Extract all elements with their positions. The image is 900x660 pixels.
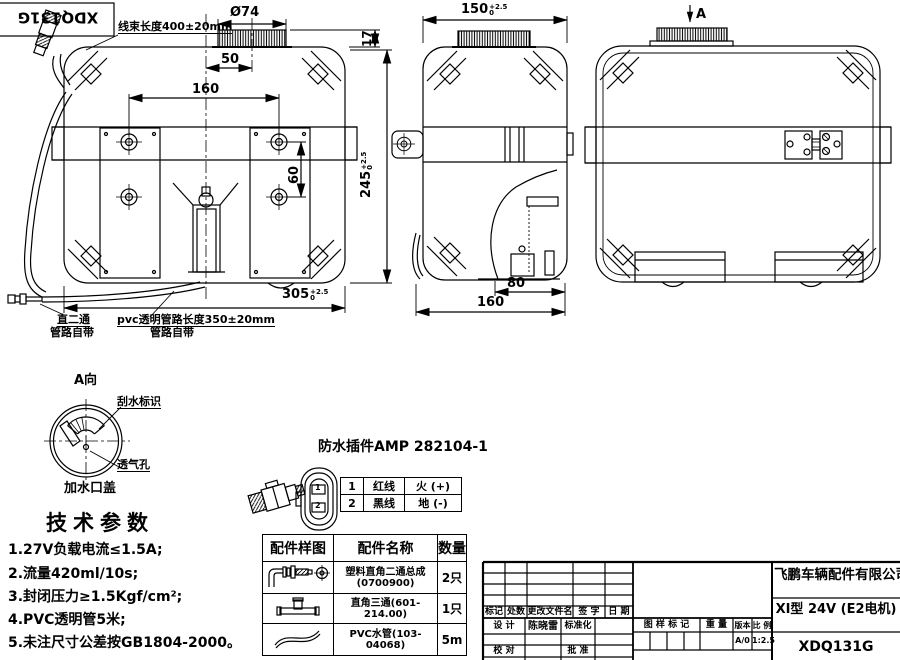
dim-tank-width: 305+2.50 xyxy=(282,288,328,302)
tb-weight-label: 重 量 xyxy=(700,621,733,631)
parts-header-sample: 配件样图 xyxy=(263,535,334,562)
pvc-tube-icon xyxy=(265,625,331,651)
dim-hole-span: 160 xyxy=(192,83,219,97)
dim-tank-height: 245+2.50 xyxy=(360,152,374,198)
tb-company-name: 飞鹏车辆配件有限公司 xyxy=(774,568,898,583)
table-row: 配件样图 配件名称 数量 xyxy=(263,535,467,562)
dim-cap-diameter: Ø74 xyxy=(230,6,259,20)
tb-count-label: 处数 xyxy=(505,608,527,618)
connector-pin2-mark: 2 xyxy=(315,502,321,511)
tb-date-label: 日 期 xyxy=(605,608,633,618)
connector-face-view xyxy=(296,468,337,530)
pin-wire: 红线 xyxy=(364,478,405,495)
tech-param-item: 2.流量420ml/10s; xyxy=(8,567,138,582)
strap-clamp xyxy=(785,131,842,159)
table-row: 塑料直角二通总成 (0700900) 2只 xyxy=(263,562,467,594)
tb-check-label: 校 对 xyxy=(483,647,525,657)
tech-params-title: 技术参数 xyxy=(46,512,154,535)
detail-a-title: A向 xyxy=(74,374,97,388)
wiper-symbol xyxy=(60,417,104,449)
table-row: 直角三通(601-214.00) 1只 xyxy=(263,594,467,624)
engineering-drawing-sheet: XDQ131G 线束长度400±20mm Ø74 50 160 60 17 24… xyxy=(0,0,900,660)
tech-param-item: 1.27V负载电流≤1.5A; xyxy=(8,543,163,558)
tech-param-item: 3.封闭压力≥1.5Kgf/cm²; xyxy=(8,590,182,605)
detail-a-view xyxy=(44,399,130,485)
dim-hole-vspan: 60 xyxy=(288,166,302,184)
part-qty: 5m xyxy=(438,624,467,656)
tb-version-label: 版本 xyxy=(733,622,752,631)
part-name: PVC水管(103-04068) xyxy=(334,629,437,651)
dim-pump-offset: 80 xyxy=(507,277,525,291)
tb-mark-label: 标记 xyxy=(483,608,505,618)
dim-cap-height: 17 xyxy=(361,30,374,47)
parts-header-qty: 数量 xyxy=(438,535,467,562)
pvc-pipe-note-line2: 管路自带 xyxy=(150,327,194,339)
connector-pin-table: 1 红线 火 (+) 2 黑线 地 (-) xyxy=(340,477,462,512)
tb-product-title: XI型 24V (E2电机) xyxy=(774,603,898,617)
pin-no: 1 xyxy=(341,478,364,495)
pvc-pipe-note-line1: pvc透明管路长度350±20mm xyxy=(117,314,275,327)
straight-fitting-note-line2: 管路自带 xyxy=(50,327,94,339)
tee-fitting-icon xyxy=(265,595,331,619)
filler-cap-label: 加水口盖 xyxy=(64,482,116,496)
tb-scale-value: 1:2.5 xyxy=(752,637,772,646)
tb-scale-label: 比 例 xyxy=(752,622,772,631)
tech-param-item: 4.PVC透明管5米; xyxy=(8,613,126,628)
tb-standardization-label: 标准化 xyxy=(561,622,595,632)
table-row: 1 红线 火 (+) xyxy=(341,478,462,495)
connector-pin1-mark: 1 xyxy=(315,484,321,493)
part-code: (0700900) xyxy=(334,578,437,589)
tb-version-value: A/0 xyxy=(733,637,752,646)
tb-designer-name: 陈晓雷 xyxy=(525,621,561,632)
parts-header-name: 配件名称 xyxy=(334,535,438,562)
elbow-fitting-icon xyxy=(265,563,331,589)
part-name: 直角三通(601-214.00) xyxy=(334,598,437,620)
tb-drawing-mark-label: 图 样 标 记 xyxy=(633,621,700,631)
dim-cap-offset: 50 xyxy=(221,53,239,67)
part-qty: 2只 xyxy=(438,562,467,594)
view-a-arrow-label: A xyxy=(696,8,706,22)
table-row: 2 黑线 地 (-) xyxy=(341,495,462,512)
dim-side-width: 150+2.50 xyxy=(461,3,507,17)
part-qty: 1只 xyxy=(438,594,467,624)
connector-side-view xyxy=(246,474,306,515)
pin-role: 地 (-) xyxy=(405,495,462,512)
pin-role: 火 (+) xyxy=(405,478,462,495)
side-view xyxy=(392,16,573,316)
tb-signature-label: 签 字 xyxy=(573,608,605,618)
tech-param-item: 5.未注尺寸公差按GB1804-2000。 xyxy=(8,636,241,651)
table-row: PVC水管(103-04068) 5m xyxy=(263,624,467,656)
pin-no: 2 xyxy=(341,495,364,512)
part-name: 塑料直角二通总成 xyxy=(334,567,437,578)
harness-length-note: 线束长度400±20mm xyxy=(118,21,232,34)
vent-hole-label: 透气孔 xyxy=(117,459,150,472)
model-tag-label: XDQ131G xyxy=(10,9,106,26)
dim-side-depth: 160 xyxy=(477,296,504,310)
tb-design-label: 设 计 xyxy=(483,622,525,632)
parts-table: 配件样图 配件名称 数量 塑料直角二通总成 (0700900) 2只 xyxy=(262,534,467,656)
tb-approve-label: 批 准 xyxy=(561,647,595,657)
wiper-mark-label: 刮水标识 xyxy=(117,396,161,409)
connector-title: 防水插件AMP 282104-1 xyxy=(318,440,488,455)
elbow-fitting xyxy=(8,294,42,304)
front-view xyxy=(0,3,392,317)
tb-drawing-number: XDQ131G xyxy=(774,640,898,655)
rear-view xyxy=(585,5,891,287)
pin-wire: 黑线 xyxy=(364,495,405,512)
tb-changed-file-label: 更改文件名 xyxy=(527,608,573,618)
